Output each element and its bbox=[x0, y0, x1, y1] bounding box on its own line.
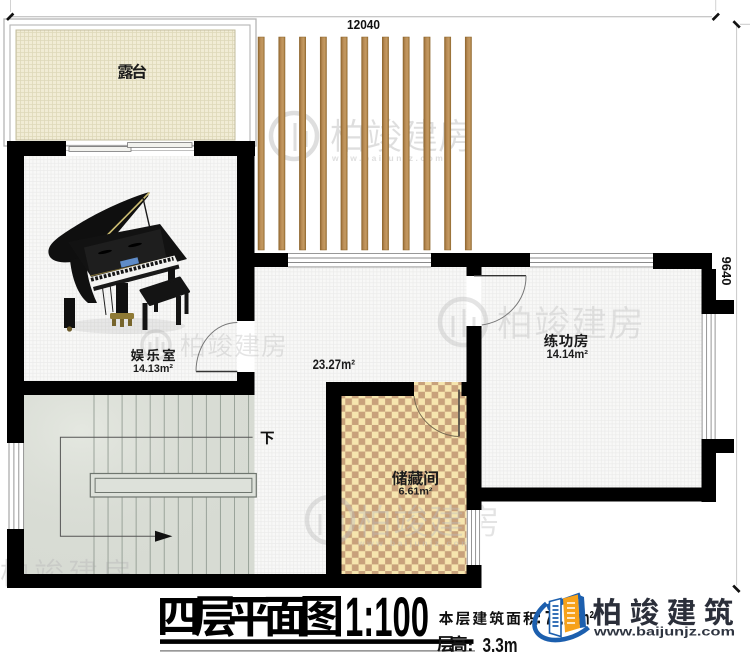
svg-text:6.61m²: 6.61m² bbox=[399, 487, 434, 498]
svg-text:9640: 9640 bbox=[719, 257, 734, 286]
svg-text:12040: 12040 bbox=[347, 17, 380, 32]
svg-text:www.baijunjz.com: www.baijunjz.com bbox=[357, 538, 471, 548]
svg-text:23.27m²: 23.27m² bbox=[313, 357, 356, 372]
svg-text:3.3m: 3.3m bbox=[483, 635, 518, 657]
svg-text:14.14m²: 14.14m² bbox=[547, 348, 589, 361]
svg-text:www.baijunjz.com: www.baijunjz.com bbox=[593, 624, 735, 638]
svg-text:14.13m²: 14.13m² bbox=[133, 363, 173, 375]
svg-text:1:100: 1:100 bbox=[345, 585, 429, 648]
